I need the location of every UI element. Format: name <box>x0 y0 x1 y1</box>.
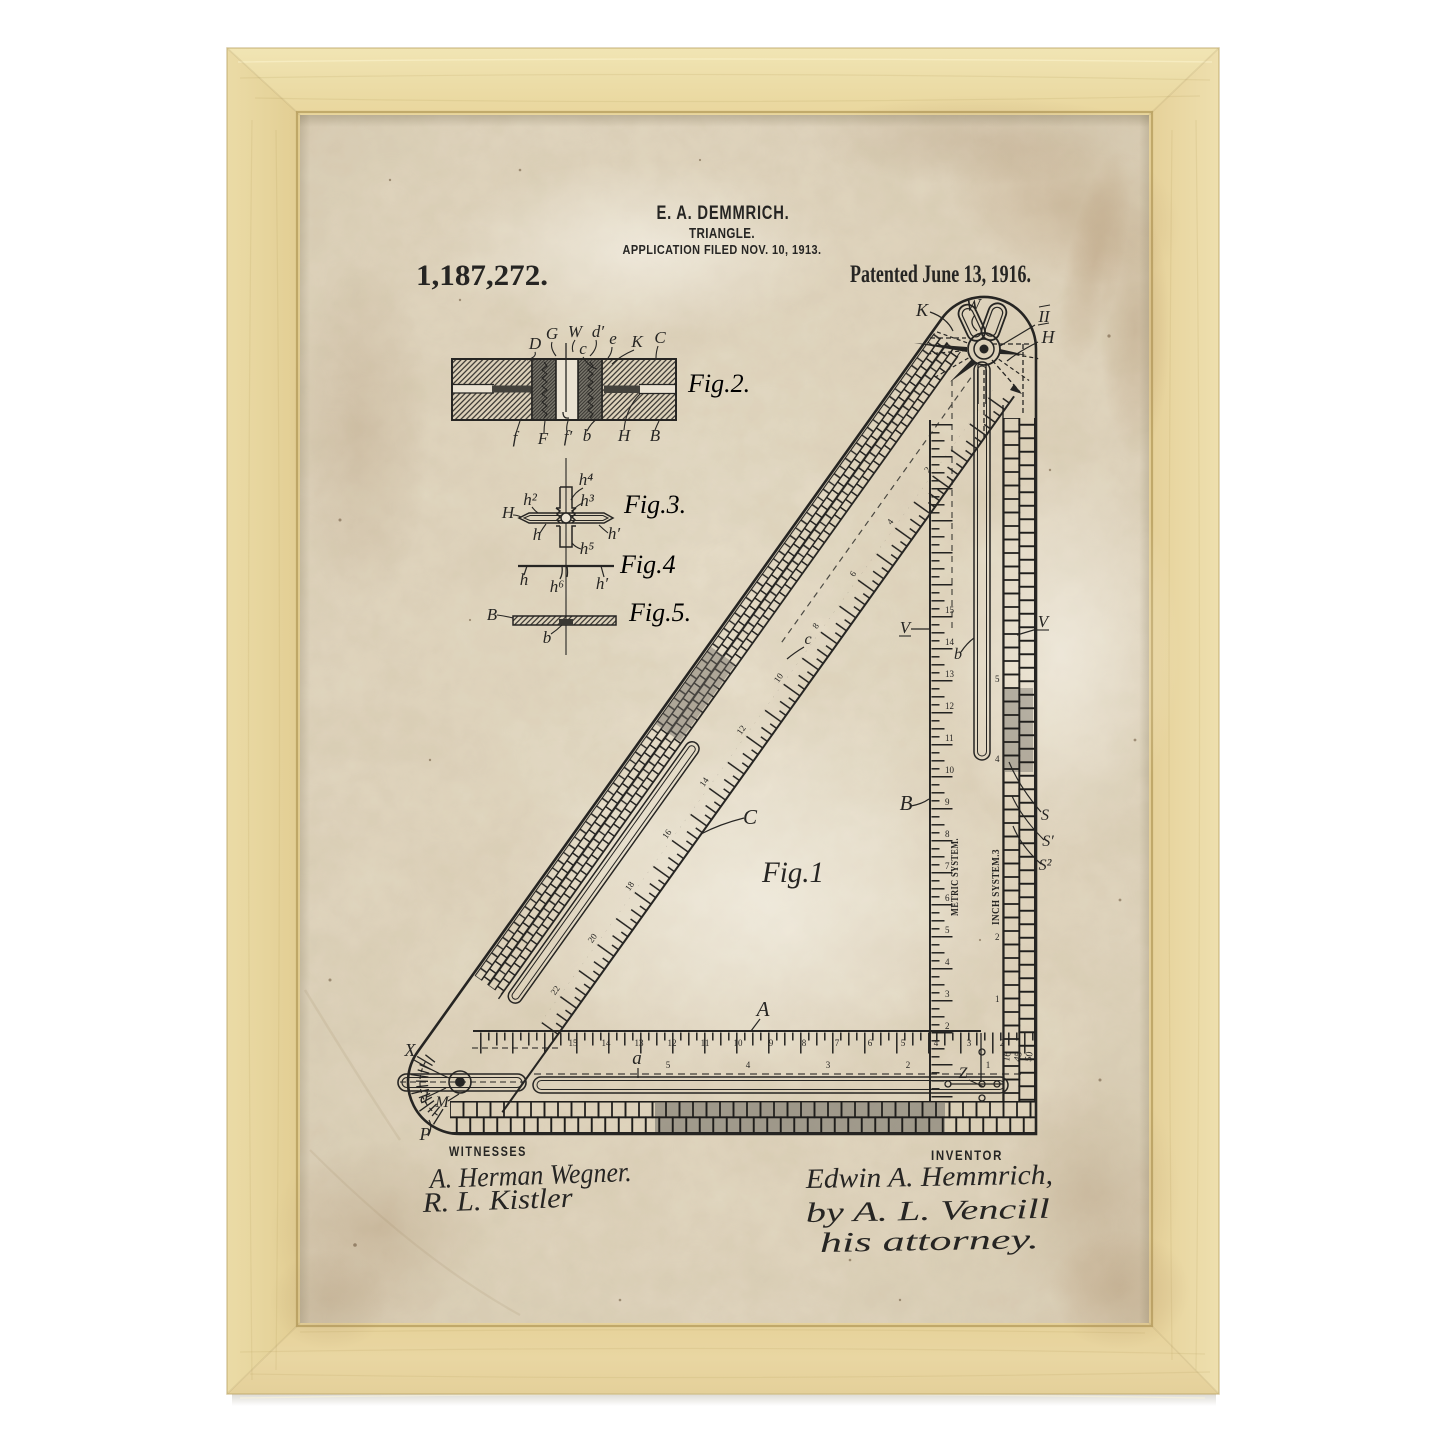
svg-text:Edwin A. Hemmrich,: Edwin A. Hemmrich, <box>805 1160 1054 1195</box>
svg-text:TRIANGLE.: TRIANGLE. <box>689 225 755 242</box>
svg-text:1: 1 <box>986 1060 991 1070</box>
svg-text:h⁴: h⁴ <box>579 470 594 489</box>
svg-text:f′: f′ <box>564 427 573 446</box>
svg-text:8: 8 <box>802 1038 807 1048</box>
svg-text:9: 9 <box>769 1038 774 1048</box>
svg-text:5: 5 <box>901 1038 906 1048</box>
svg-text:6: 6 <box>868 1038 873 1048</box>
svg-text:B: B <box>487 605 498 624</box>
svg-text:15: 15 <box>569 1038 579 1048</box>
svg-text:X: X <box>404 1040 417 1060</box>
svg-text:C: C <box>654 328 666 347</box>
svg-text:G: G <box>546 324 558 343</box>
svg-text:Fig.1: Fig.1 <box>761 856 824 889</box>
svg-text:50: 50 <box>1023 1051 1036 1063</box>
svg-text:4: 4 <box>934 1038 939 1048</box>
svg-text:b: b <box>954 646 962 663</box>
svg-text:2: 2 <box>906 1060 911 1070</box>
svg-text:10: 10 <box>945 765 955 775</box>
svg-text:e: e <box>609 329 617 348</box>
svg-text:Fig.5.: Fig.5. <box>628 598 691 627</box>
svg-text:a: a <box>632 1048 642 1069</box>
svg-text:Z: Z <box>959 1065 969 1082</box>
svg-text:13: 13 <box>945 669 955 679</box>
svg-text:1,187,272.: 1,187,272. <box>416 259 548 292</box>
svg-text:b: b <box>583 426 592 445</box>
svg-text:4: 4 <box>945 957 950 967</box>
svg-text:h: h <box>533 525 542 544</box>
svg-text:3: 3 <box>967 1038 972 1048</box>
svg-text:S′: S′ <box>1042 833 1054 850</box>
svg-text:Fig.2.: Fig.2. <box>687 369 750 398</box>
svg-text:d: d <box>420 1090 429 1107</box>
svg-text:B: B <box>900 791 913 815</box>
svg-text:2: 2 <box>945 1021 950 1031</box>
svg-text:11: 11 <box>701 1038 710 1048</box>
svg-text:C: C <box>743 805 758 829</box>
svg-text:F: F <box>537 429 549 448</box>
svg-text:W: W <box>966 295 983 315</box>
svg-text:c: c <box>804 631 811 648</box>
svg-text:15: 15 <box>945 605 955 615</box>
svg-text:S: S <box>1041 807 1049 824</box>
svg-text:d′: d′ <box>592 322 605 341</box>
svg-text:9: 9 <box>945 797 950 807</box>
svg-text:5: 5 <box>945 925 950 935</box>
svg-text:R. L. Kistler: R. L. Kistler <box>421 1183 573 1219</box>
svg-text:4: 4 <box>995 754 1000 764</box>
svg-text:INCH SYSTEM.3: INCH SYSTEM.3 <box>991 849 1002 925</box>
svg-text:Fig.4: Fig.4 <box>619 550 676 579</box>
svg-text:K: K <box>915 300 929 320</box>
svg-text:H: H <box>501 503 516 522</box>
svg-text:METRIC SYSTEM.: METRIC SYSTEM. <box>950 838 961 916</box>
svg-text:3: 3 <box>945 989 950 999</box>
svg-text:his attorney.: his attorney. <box>820 1224 1040 1259</box>
svg-text:8: 8 <box>945 829 950 839</box>
svg-text:Patented June 13, 1916.: Patented June 13, 1916. <box>850 261 1031 288</box>
svg-text:2: 2 <box>995 932 1000 942</box>
svg-text:A: A <box>755 997 770 1021</box>
svg-text:5: 5 <box>995 674 1000 684</box>
svg-text:14: 14 <box>602 1038 612 1048</box>
svg-text:h²: h² <box>523 490 538 509</box>
svg-text:h: h <box>520 570 529 589</box>
svg-text:APPLICATION FILED NOV. 10, 191: APPLICATION FILED NOV. 10, 1913. <box>623 243 822 257</box>
svg-text:12: 12 <box>668 1038 677 1048</box>
svg-text:11: 11 <box>945 733 954 743</box>
svg-text:S²: S² <box>1039 857 1053 874</box>
svg-text:H: H <box>1041 327 1056 347</box>
svg-text:h′: h′ <box>608 524 621 543</box>
svg-text:4: 4 <box>746 1060 751 1070</box>
svg-text:h⁶: h⁶ <box>550 577 565 596</box>
svg-text:h′: h′ <box>596 574 609 593</box>
svg-text:b: b <box>543 628 552 647</box>
svg-text:5: 5 <box>666 1060 671 1070</box>
svg-text:1: 1 <box>995 994 1000 1004</box>
svg-text:D: D <box>528 334 542 353</box>
svg-text:h³: h³ <box>580 491 595 510</box>
svg-text:M: M <box>434 1094 450 1111</box>
svg-text:E. A. DEMMRICH.: E. A. DEMMRICH. <box>657 202 790 224</box>
svg-text:h⁵: h⁵ <box>580 539 595 558</box>
svg-text:WITNESSES: WITNESSES <box>449 1143 527 1159</box>
svg-text:c: c <box>579 339 587 358</box>
svg-text:K: K <box>630 332 644 351</box>
svg-text:3: 3 <box>826 1060 831 1070</box>
svg-text:10: 10 <box>734 1038 744 1048</box>
svg-text:Fig.3.: Fig.3. <box>623 490 686 519</box>
svg-text:12: 12 <box>945 701 954 711</box>
svg-text:2: 2 <box>1000 1038 1005 1048</box>
svg-text:7: 7 <box>835 1038 840 1048</box>
svg-text:13: 13 <box>635 1038 645 1048</box>
